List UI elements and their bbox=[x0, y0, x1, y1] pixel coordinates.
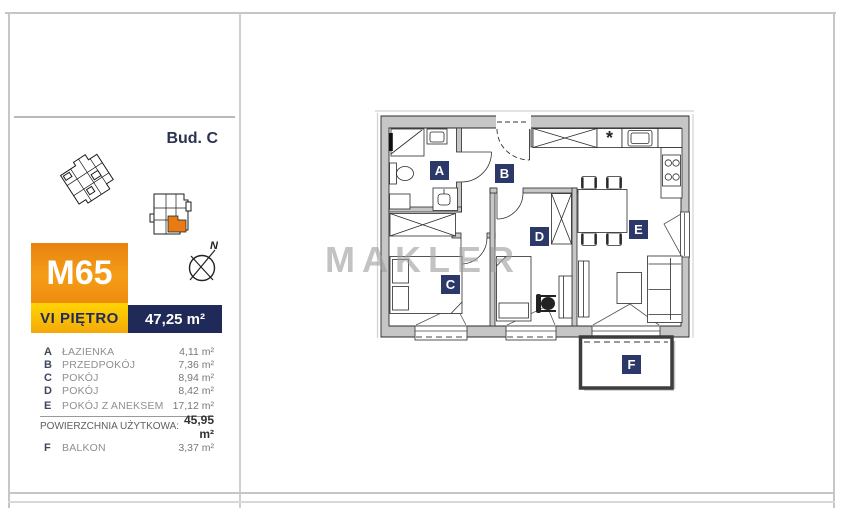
kitchen-counter-corner bbox=[658, 129, 682, 148]
room-name: POKÓJ Z ANEKSEM bbox=[62, 400, 173, 412]
bathroom-door-arc bbox=[462, 152, 492, 182]
room-area: 8,42 m² bbox=[178, 385, 214, 397]
bathroom-shelf bbox=[390, 194, 411, 209]
unit-id: M65 bbox=[46, 254, 112, 293]
room-name: POKÓJ bbox=[62, 372, 178, 384]
building-label: Bud. C bbox=[150, 130, 218, 152]
legend-row-c: C POKÓJ 8,94 m² bbox=[44, 372, 214, 384]
room-area: 8,94 m² bbox=[178, 372, 214, 384]
room-label-f: F bbox=[622, 355, 641, 374]
kitchen-sink bbox=[622, 129, 658, 148]
site-plan-unit-location-icon bbox=[146, 188, 198, 240]
floorplan-card: Bud. C M65 N VI PIĘ bbox=[0, 0, 843, 508]
room-letter: F bbox=[44, 442, 62, 454]
desk bbox=[559, 276, 572, 318]
kitchen-cabinet-hatched bbox=[533, 129, 597, 148]
coffee-table bbox=[617, 273, 642, 304]
legend-row-a: A ŁAZIENKA 4,11 m² bbox=[44, 346, 214, 358]
legend-row-f: F BALKON 3,37 m² bbox=[44, 442, 214, 454]
usable-area-row: POWIERZCHNIA UŻYTKOWA: 45,95 m² bbox=[40, 420, 214, 433]
total-area-value: 47,25 m² bbox=[145, 311, 205, 328]
wardrobe-room-c bbox=[390, 214, 456, 237]
room-area: 3,37 m² bbox=[178, 442, 214, 454]
room-label-e: E bbox=[629, 220, 648, 239]
room-letter: C bbox=[44, 372, 62, 384]
legend-row-b: B PRZEDPOKÓJ 7,36 m² bbox=[44, 359, 214, 371]
site-plan-overview-icon bbox=[56, 146, 126, 216]
room-area: 4,11 m² bbox=[179, 346, 214, 358]
fridge-unit: * bbox=[597, 128, 622, 148]
room-area: 7,36 m² bbox=[178, 359, 214, 371]
room-letter: D bbox=[44, 385, 62, 397]
column-divider bbox=[239, 13, 241, 508]
compass-north-label: N bbox=[210, 240, 219, 252]
room-label-a: A bbox=[430, 161, 449, 180]
entrance-door bbox=[496, 115, 531, 161]
watermark: MAKLER bbox=[325, 239, 521, 281]
room-name: POKÓJ bbox=[62, 385, 178, 397]
floor-label: VI PIĘTRO bbox=[40, 310, 119, 327]
compass-icon: N bbox=[183, 238, 223, 288]
room-letter: A bbox=[44, 346, 62, 358]
room-label-b: B bbox=[495, 164, 514, 183]
stove-icon bbox=[663, 155, 681, 186]
usable-area-value: 45,95 m² bbox=[179, 413, 214, 441]
room-name: ŁAZIENKA bbox=[62, 346, 179, 358]
dining-table bbox=[578, 190, 627, 233]
total-area-badge: 47,25 m² bbox=[128, 305, 222, 333]
room-letter: B bbox=[44, 359, 62, 371]
legend-row-d: D POKÓJ 8,42 m² bbox=[44, 385, 214, 397]
office-chair-icon bbox=[536, 294, 556, 313]
living-area bbox=[579, 256, 683, 323]
tv-cabinet bbox=[579, 261, 590, 317]
frame-top bbox=[5, 12, 836, 14]
sink-icon bbox=[427, 129, 447, 144]
room-area: 17,12 m² bbox=[173, 400, 214, 412]
chair-icon bbox=[607, 233, 622, 246]
sofa bbox=[648, 256, 683, 323]
chair-icon bbox=[607, 177, 622, 190]
fridge-asterisk-symbol: * bbox=[606, 128, 613, 148]
shower-icon bbox=[389, 129, 424, 156]
room-label-c: C bbox=[441, 275, 460, 294]
window-room-e-right bbox=[681, 212, 690, 257]
frame-right bbox=[833, 12, 835, 508]
frame-bottom-2 bbox=[8, 501, 835, 503]
window-room-c bbox=[415, 326, 467, 340]
window-room-d bbox=[506, 326, 556, 340]
washbasin-icon bbox=[433, 188, 458, 211]
room-name: BALKON bbox=[62, 442, 178, 454]
room-name: PRZEDPOKÓJ bbox=[62, 359, 178, 371]
toilet-icon bbox=[390, 163, 414, 184]
usable-area-label: POWIERZCHNIA UŻYTKOWA: bbox=[40, 421, 179, 432]
frame-left bbox=[8, 12, 10, 508]
room-letter: E bbox=[44, 400, 62, 412]
room-d-door-arc bbox=[497, 193, 523, 219]
sidebar-separator bbox=[14, 116, 235, 118]
unit-id-badge: M65 bbox=[31, 243, 128, 303]
floor-badge: VI PIĘTRO bbox=[31, 303, 128, 333]
room-label-d: D bbox=[530, 227, 549, 246]
frame-bottom-1 bbox=[8, 492, 835, 494]
chair-icon bbox=[582, 233, 597, 246]
dining-set bbox=[578, 177, 627, 246]
wardrobe-room-d bbox=[552, 194, 572, 245]
chair-icon bbox=[582, 177, 597, 190]
legend-row-e: E POKÓJ Z ANEKSEM 17,12 m² bbox=[44, 400, 214, 412]
